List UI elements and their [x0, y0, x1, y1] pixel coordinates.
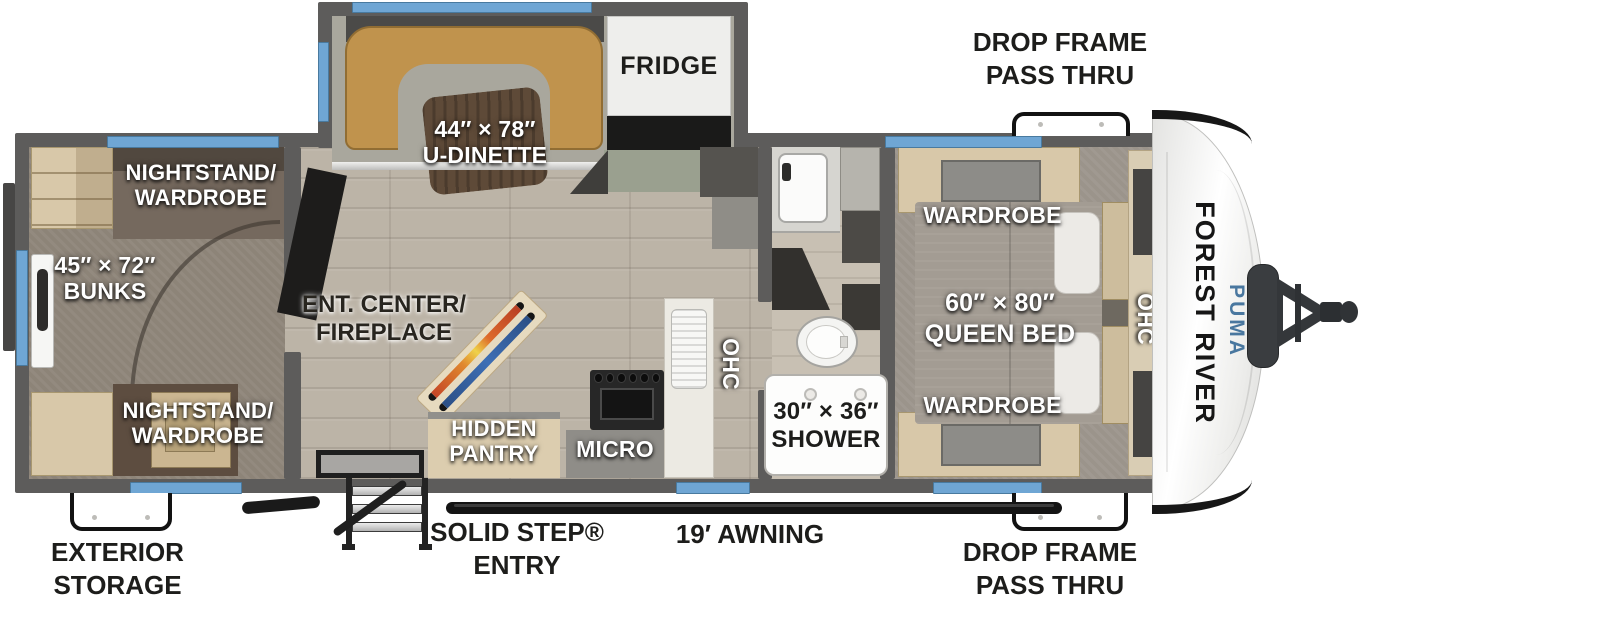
- stove: [590, 370, 664, 430]
- fridge-base: [607, 116, 731, 150]
- hitch-jack: [1247, 264, 1279, 368]
- callout-awning: 19′ AWNING: [655, 518, 845, 551]
- brand-wordmark-wrap: FOREST RIVER: [1187, 172, 1221, 454]
- kitchen-sink: [671, 309, 707, 389]
- front-cap-trim-top: [1152, 110, 1252, 144]
- wardrobe-top-label: WARDROBE: [900, 202, 1085, 228]
- window-top-rear: [107, 136, 279, 148]
- dinette-label: 44″ × 78″ U-DINETTE: [395, 116, 575, 169]
- window-slideout-top: [352, 2, 592, 13]
- bath-faucet: [782, 163, 791, 181]
- ent-center-fireplace-label: ENT. CENTER/ FIREPLACE: [286, 291, 482, 346]
- hitch-coupler: [1320, 302, 1342, 322]
- micro-label: MICRO: [566, 436, 664, 462]
- bunks-label: 45″ × 72″ BUNKS: [30, 252, 180, 305]
- window-rear-wall: [16, 250, 28, 366]
- ohc-kitchen-label: OHC: [718, 338, 744, 390]
- callout-exterior-storage: EXTERIOR STORAGE: [15, 536, 220, 601]
- entry-landing: [316, 450, 424, 478]
- awning-rod-left: [242, 496, 321, 515]
- kitchen-ohc-upper-dark: [700, 147, 758, 197]
- toilet: [796, 316, 858, 368]
- front-cap-trim-bottom: [1152, 480, 1252, 514]
- kitchen-ohc-label-wrap: OHC: [703, 336, 759, 392]
- hidden-pantry-label: HIDDEN PANTRY: [428, 416, 560, 467]
- stove-burners: [594, 373, 660, 385]
- bunk-nightstand-top-cabinet: [31, 147, 113, 229]
- shower-label: 30″ × 36″ SHOWER: [764, 398, 888, 453]
- headboard-top: [1102, 202, 1130, 300]
- bath-cabinet-top-right: [840, 147, 880, 211]
- floorplan-canvas: FRIDGE 44″ × 78″ U-DINETTE NIGHTSTAND/ W…: [0, 0, 1600, 617]
- fridge-label: FRIDGE: [620, 52, 717, 81]
- pass-thru-bracket-top: [1012, 112, 1130, 136]
- fridge: FRIDGE: [607, 16, 731, 116]
- rear-bumper: [3, 183, 15, 351]
- bath-shelf-dark: [842, 211, 880, 263]
- nightstand-wardrobe-top-label: NIGHTSTAND/ WARDROBE: [108, 160, 294, 211]
- callout-drop-frame-top: DROP FRAME PASS THRU: [930, 26, 1190, 91]
- window-bottom-mid: [676, 482, 750, 494]
- callout-drop-frame-bottom: DROP FRAME PASS THRU: [920, 536, 1180, 601]
- bath-wall-left-upper: [758, 147, 772, 302]
- oven-window: [600, 388, 654, 420]
- step-foot-left: [342, 544, 355, 550]
- queen-bed-label: 60″ × 80″ QUEEN BED: [905, 288, 1095, 351]
- awning-bar: [446, 502, 1062, 514]
- puma-wordmark: PUMA: [1224, 284, 1248, 358]
- bunkroom-wall-lower: [284, 352, 301, 479]
- nightstand-wardrobe-bottom-label: NIGHTSTAND/ WARDROBE: [100, 398, 296, 449]
- kitchen-ohc-upper: [712, 197, 758, 249]
- forest-river-wordmark: FOREST RIVER: [1188, 201, 1219, 425]
- hitch-cross-bar: [1295, 284, 1301, 342]
- window-top-front: [885, 136, 1042, 148]
- front-cap-seam: [1166, 152, 1168, 472]
- wardrobe-bottom-label: WARDROBE: [900, 392, 1085, 418]
- exterior-storage-bracket: [70, 493, 172, 531]
- toilet-hinge: [840, 336, 848, 348]
- callout-solid-step-entry: SOLID STEP® ENTRY: [412, 516, 622, 581]
- wardrobe-top-glass: [941, 160, 1041, 202]
- bath-vanity-counter: [772, 147, 840, 233]
- hitch-ball-knob: [1340, 301, 1358, 323]
- wardrobe-bottom-glass: [941, 424, 1041, 466]
- window-slideout-side: [318, 42, 329, 122]
